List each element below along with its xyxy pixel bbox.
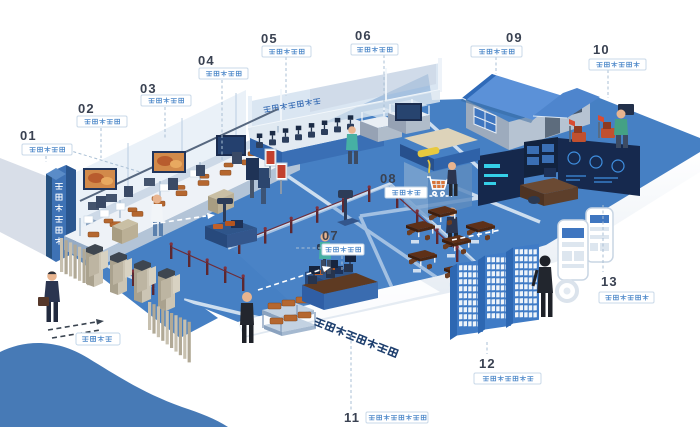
svg-text:02: 02: [78, 101, 95, 116]
svg-text:06: 06: [355, 28, 372, 43]
svg-text:12: 12: [479, 356, 496, 371]
svg-text:07: 07: [322, 228, 339, 243]
svg-text:03: 03: [140, 81, 157, 96]
svg-text:10: 10: [593, 42, 610, 57]
svg-text:05: 05: [261, 31, 278, 46]
svg-text:08: 08: [380, 171, 397, 186]
svg-text:04: 04: [198, 53, 215, 68]
svg-text:09: 09: [506, 30, 523, 45]
svg-text:11: 11: [344, 410, 360, 425]
svg-text:13: 13: [601, 274, 618, 289]
svg-text:01: 01: [20, 128, 37, 143]
